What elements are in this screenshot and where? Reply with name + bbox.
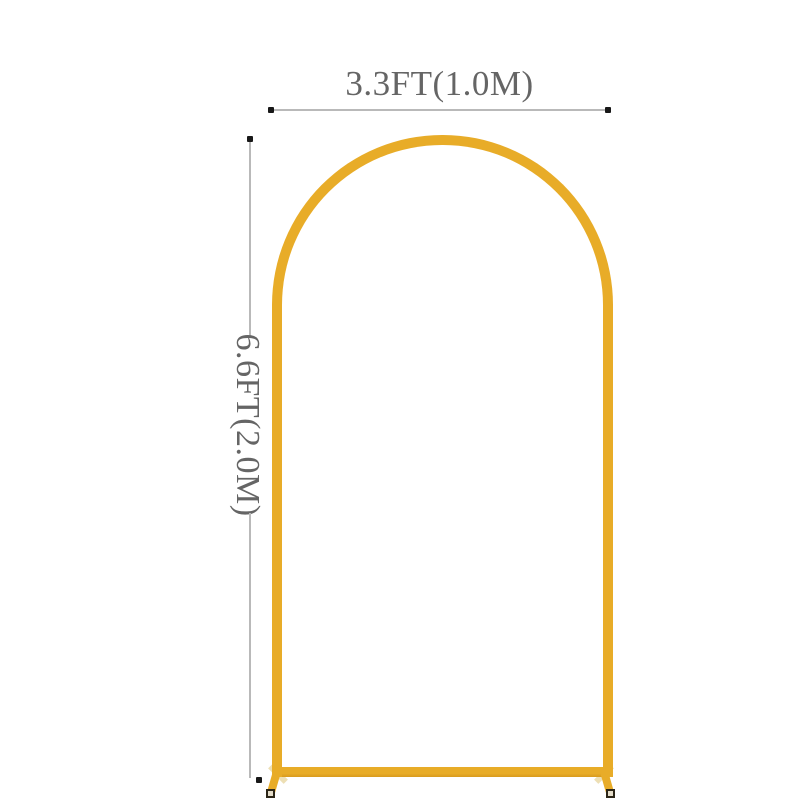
right-foot-end-cap xyxy=(606,789,615,798)
left-foot-end-cap xyxy=(266,789,275,798)
dimension-diagram: 3.3FT(1.0M) 6.6FT(2.0M) xyxy=(0,0,800,800)
height-endpoint-dot-bottom xyxy=(256,777,262,783)
width-dimension-label: 3.3FT(1.0M) xyxy=(271,60,608,108)
width-dimension-line xyxy=(271,109,608,111)
width-endpoint-dot-left xyxy=(268,107,274,113)
arch-frame xyxy=(272,135,613,777)
height-dimension-label: 6.6FT(2.0M) xyxy=(222,275,272,575)
height-dimension-line-lower xyxy=(249,513,251,778)
width-endpoint-dot-right xyxy=(605,107,611,113)
